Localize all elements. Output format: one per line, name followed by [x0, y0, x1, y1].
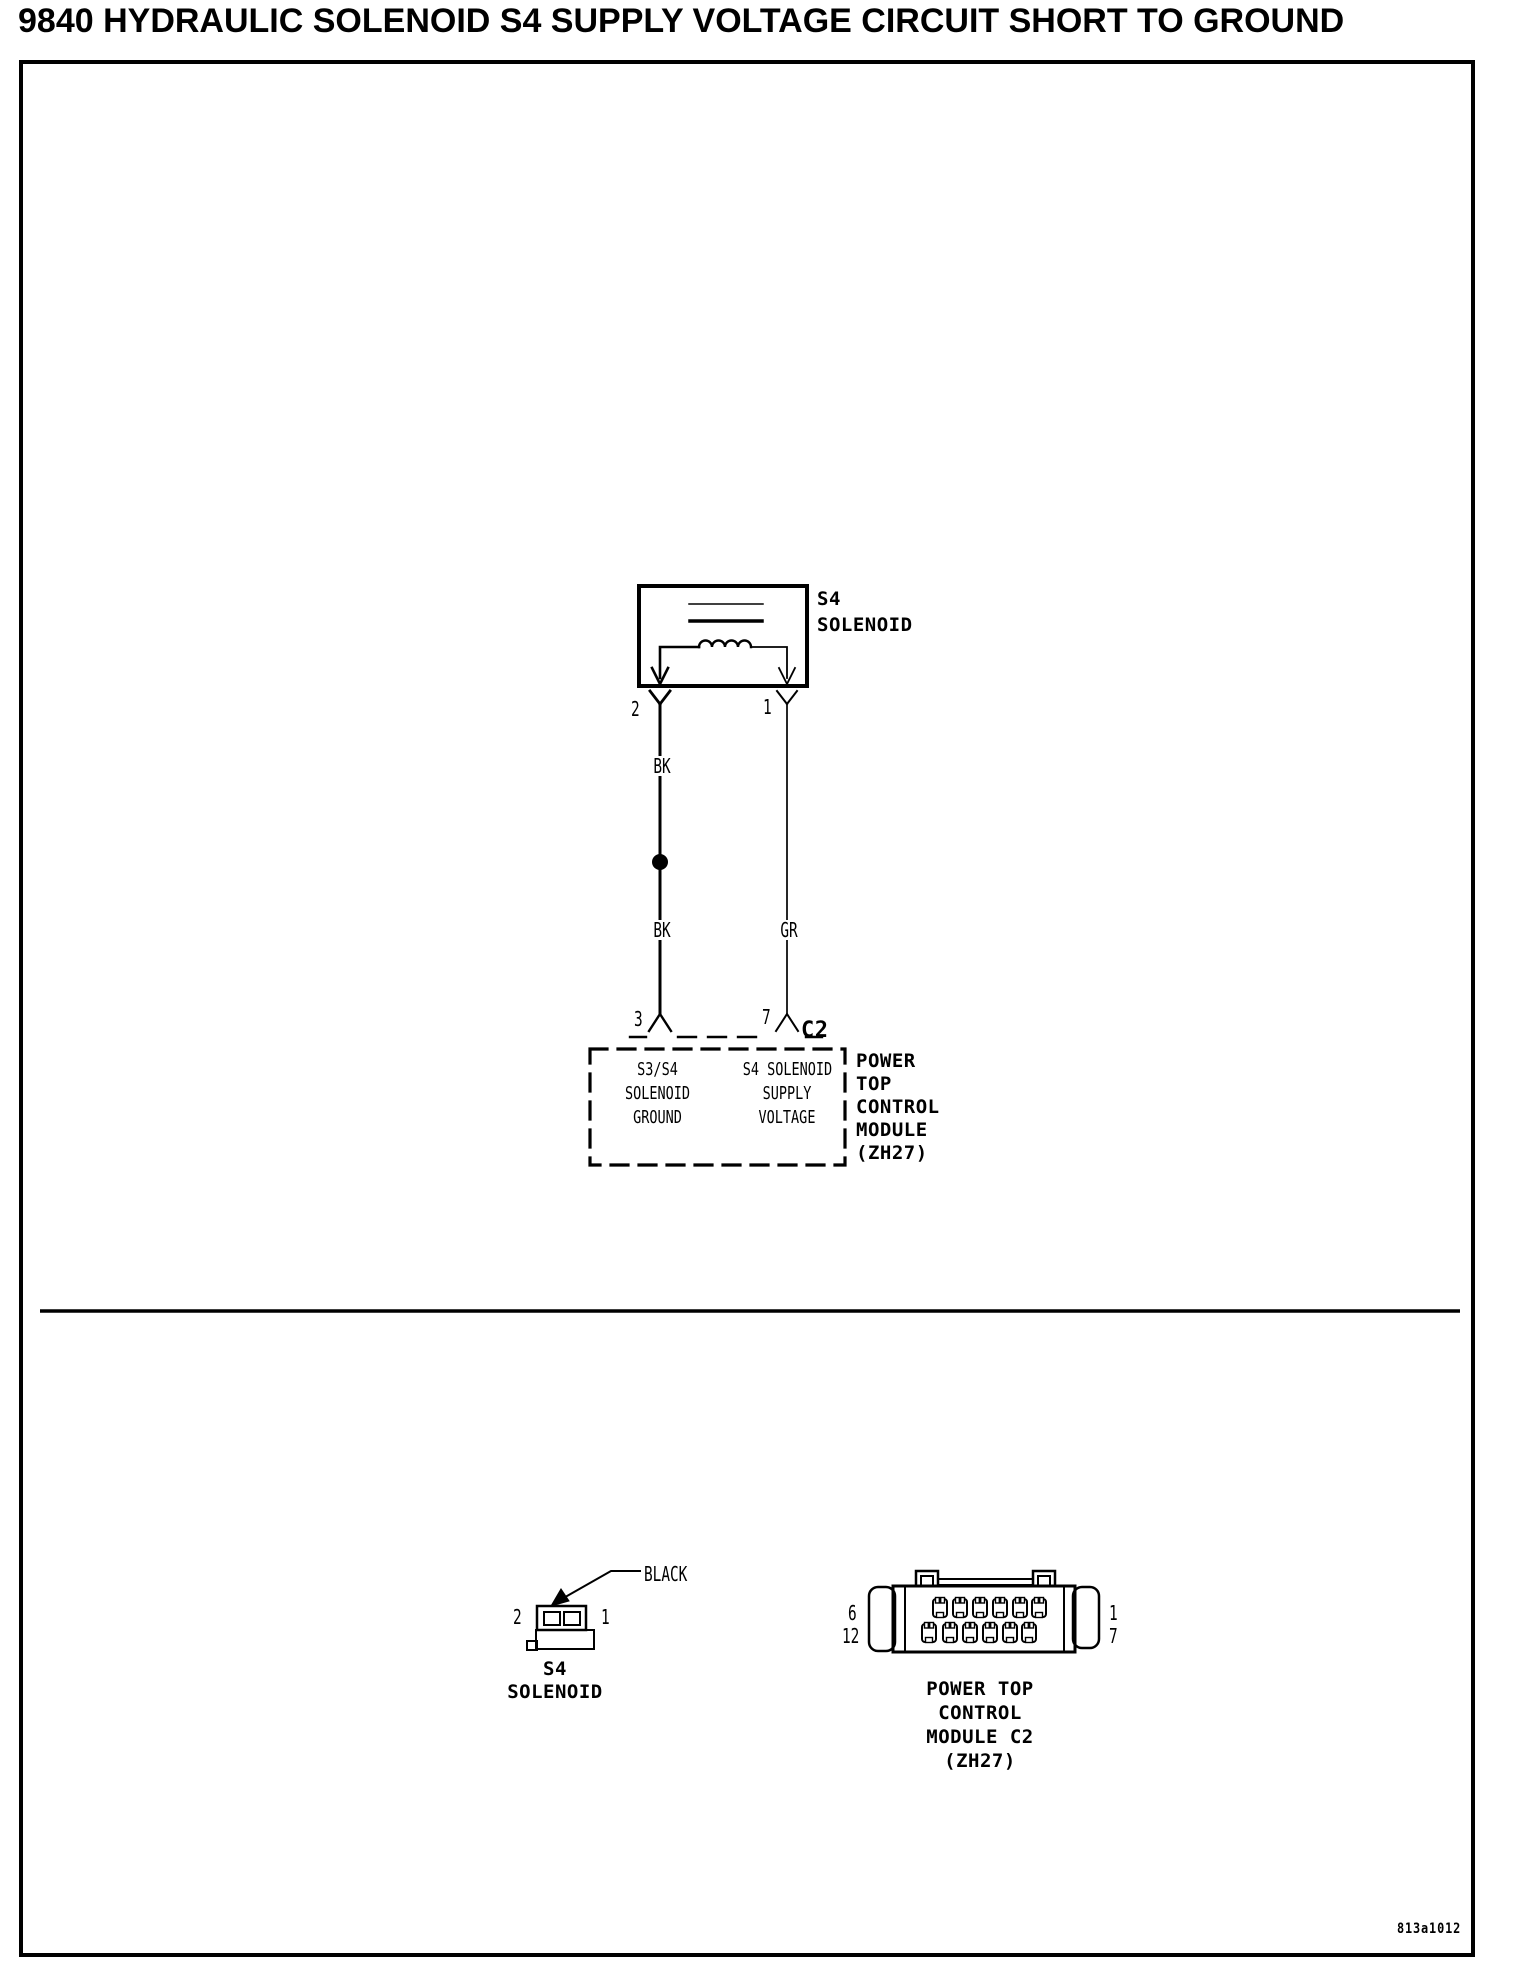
c2-latch-tab-right: [1033, 1571, 1055, 1586]
wire-color-gr: GR: [773, 920, 805, 940]
module-name-line3: CONTROL: [856, 1096, 940, 1119]
pin7-function-line3: VOLTAGE: [743, 1106, 832, 1130]
connector-c2-label: C2: [801, 1018, 829, 1043]
wire-color-bk-lower: BK: [646, 920, 678, 940]
connector-color-label: BLACK: [644, 1564, 687, 1584]
pin3-function-label: S3/S4 SOLENOID GROUND: [614, 1058, 700, 1130]
black-callout-arrowhead-icon: [551, 1589, 569, 1606]
pin7-function-line1: S4 SOLENOID: [743, 1058, 832, 1082]
module-connector-name-line3: MODULE C2: [880, 1725, 1080, 1749]
module-name-line1: POWER: [856, 1050, 940, 1073]
c2-pin6-label: 6: [848, 1603, 857, 1623]
solenoid-connector-pin2-label: 2: [513, 1607, 522, 1627]
c2-latch-tab-left: [916, 1571, 938, 1586]
pin7-function-label: S4 SOLENOID SUPPLY VOLTAGE: [743, 1058, 832, 1130]
pin3-function-line2: SOLENOID: [614, 1082, 700, 1106]
module-name-label: POWER TOP CONTROL MODULE (ZH27): [856, 1050, 940, 1165]
solenoid-box: [639, 586, 807, 686]
solenoid-name-line1: S4: [817, 586, 913, 612]
solenoid-connector-cavity-2: [544, 1612, 560, 1625]
solenoid-connector-name-label: S4 SOLENOID: [495, 1658, 615, 1704]
module-connector-name-line1: POWER TOP: [880, 1677, 1080, 1701]
c2-right-wing: [1073, 1587, 1099, 1648]
module-pin7-label: 7: [762, 1007, 771, 1027]
socket-symbol-pin7-icon: [776, 1014, 798, 1031]
solenoid-connector-pin1-label: 1: [601, 1607, 610, 1627]
solenoid-name-label: S4 SOLENOID: [817, 586, 913, 638]
wire-color-bk-upper: BK: [646, 756, 678, 776]
module-name-line2: TOP: [856, 1073, 940, 1096]
module-pin3-label: 3: [634, 1009, 643, 1029]
diagram-line-art: [0, 0, 1520, 1978]
module-connector-name-line4: (ZH27): [880, 1749, 1080, 1773]
socket-symbol-pin2-icon: [650, 691, 670, 704]
module-connector-view: [869, 1571, 1099, 1652]
socket-symbol-pin3-icon: [649, 1014, 671, 1031]
solenoid-name-line2: SOLENOID: [817, 612, 913, 638]
solenoid-connector-cavity-1: [564, 1612, 580, 1625]
solenoid-connector-view: [527, 1571, 640, 1650]
solenoid-pin2-label: 2: [631, 699, 640, 719]
pin7-function-line2: SUPPLY: [743, 1082, 832, 1106]
module-name-line5: (ZH27): [856, 1142, 940, 1165]
solenoid-connector-name-line1: S4: [495, 1658, 615, 1681]
module-connector-name-line2: CONTROL: [880, 1701, 1080, 1725]
pin3-function-line3: GROUND: [614, 1106, 700, 1130]
socket-symbol-pin1-icon: [777, 691, 797, 704]
c2-left-wing: [869, 1587, 895, 1651]
solenoid-pin1-label: 1: [763, 697, 772, 717]
c2-pin1-label: 1: [1109, 1603, 1118, 1623]
figure-code: 813a1012: [1397, 1921, 1461, 1937]
module-name-line4: MODULE: [856, 1119, 940, 1142]
c2-pin7-label: 7: [1109, 1626, 1118, 1646]
solenoid-connector-name-line2: SOLENOID: [495, 1681, 615, 1704]
wiring-diagram-page: 9840 HYDRAULIC SOLENOID S4 SUPPLY VOLTAG…: [0, 0, 1520, 1978]
black-callout-arrow-line: [560, 1571, 640, 1600]
pin3-function-line1: S3/S4: [614, 1058, 700, 1082]
solenoid-connector-base: [536, 1630, 594, 1649]
splice-junction-dot: [652, 854, 668, 870]
c2-pin12-label: 12: [842, 1626, 859, 1646]
module-connector-name-label: POWER TOP CONTROL MODULE C2 (ZH27): [880, 1677, 1080, 1773]
solenoid-coil-icon: [699, 641, 751, 647]
